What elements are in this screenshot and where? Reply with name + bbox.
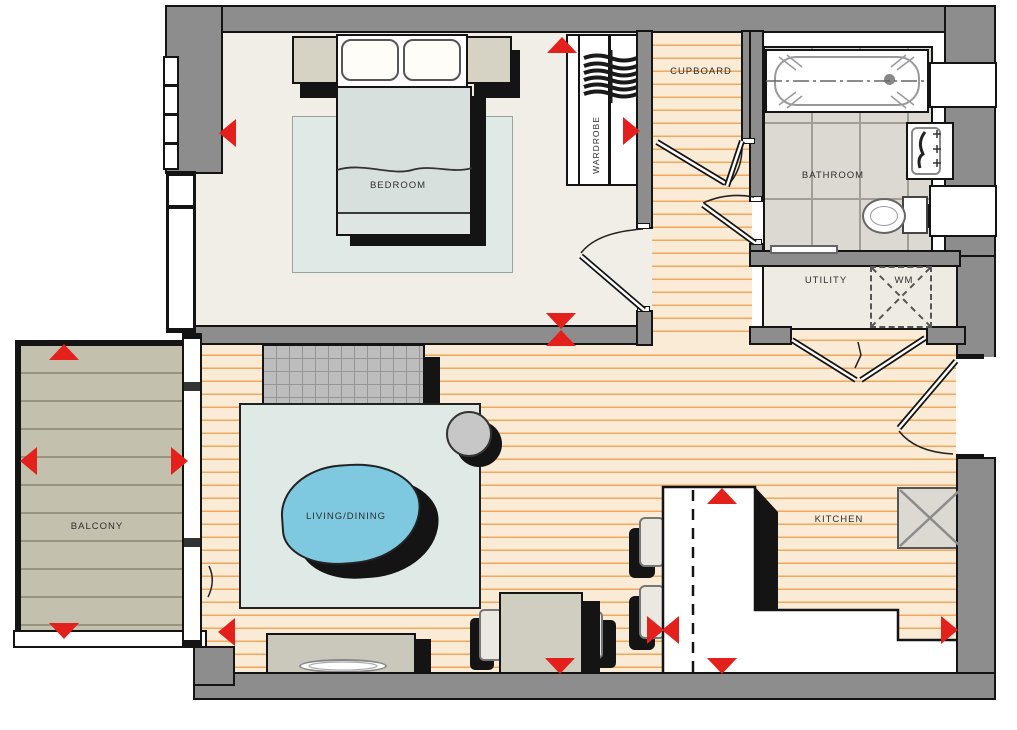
balcony-door-mullion-2 [184, 538, 200, 547]
floor-plan: BEDROOM CUPBOARD WARDROBE BATHROOM UTILI… [0, 0, 1017, 730]
window-bedroom-left-mullion-1 [166, 171, 196, 176]
bathroom-door-jamb-top [750, 196, 762, 202]
window-left-slits [163, 56, 179, 170]
sideboard-dish [299, 659, 387, 673]
dim-arrow-counter-left-b [662, 616, 679, 644]
dim-arrow-dining [545, 658, 575, 674]
washing-machine-label: WM [879, 275, 929, 286]
balcony-door-frame-top [182, 333, 202, 339]
dim-arrow-bedroom-wall-bottom [546, 330, 576, 346]
dim-arrow-balcony-left [20, 447, 37, 475]
balcony-label: BALCONY [47, 521, 147, 532]
cupboard-door-jamb [742, 138, 755, 144]
bed-pillow-right [403, 39, 461, 81]
wall-bathroom-left-upper [749, 30, 764, 202]
wall-bottom [193, 672, 996, 700]
bed-pillow-left [341, 39, 399, 81]
bathroom-label: BATHROOM [783, 170, 883, 181]
entrance-jamb-bottom [956, 454, 984, 459]
balcony-door-wall [182, 333, 202, 647]
bed-headboard-right [466, 36, 512, 84]
bathroom-door-jamb-bottom [750, 239, 762, 245]
wall-utility-bottom-left [749, 326, 792, 345]
bedroom-door-jamb-top [637, 223, 650, 229]
balcony-railing [13, 630, 207, 648]
bar-stool-1 [639, 517, 665, 567]
towel-rail [770, 245, 838, 254]
wall-top [165, 5, 996, 33]
bathroom-window-box-1 [929, 62, 997, 108]
dim-arrow-bedroom-wall-top [546, 313, 576, 329]
entrance-jamb-top [956, 354, 984, 359]
wall-utility-bottom-right [926, 326, 966, 345]
bedroom-label: BEDROOM [348, 180, 448, 191]
side-table [446, 411, 492, 457]
bedroom-door-jamb-bottom [637, 306, 650, 312]
wall-bedroom-right-lower [636, 310, 653, 346]
wall-right-kitchen [956, 457, 996, 677]
dim-arrow-kitchen-top [707, 488, 737, 504]
hallway-cupboard-floor [652, 33, 752, 343]
balcony-door-frame-bottom [182, 640, 202, 647]
dim-arrow-kitchen-bottom [707, 658, 737, 674]
entrance-opening [956, 357, 998, 457]
living-dining-label: LIVING/DINING [286, 511, 406, 522]
toilet-bowl-inner [870, 206, 898, 226]
dim-arrow-balcony-top [49, 344, 79, 360]
shower-sink-basin [911, 127, 941, 175]
dim-arrow-living-left [218, 618, 235, 646]
bathtub-drain [884, 74, 895, 85]
window-bedroom-left-mullion-2 [166, 205, 196, 209]
wardrobe-label: WARDROBE [591, 105, 601, 185]
bathtub-basin [774, 56, 920, 106]
utility-label: UTILITY [776, 275, 876, 286]
wall-bottom-left-step [193, 646, 235, 686]
dim-arrow-balcony-bottom [49, 623, 79, 639]
balcony-door-mullion-1 [184, 382, 200, 391]
dim-arrow-wardrobe [623, 117, 640, 145]
cupboard-label: CUPBOARD [651, 66, 751, 77]
kitchen-label: KITCHEN [789, 514, 889, 525]
bathroom-window-box-2 [929, 185, 997, 237]
dim-arrow-bedroom-left [219, 119, 236, 147]
dim-arrow-balcony-right [171, 447, 188, 475]
wardrobe-inner-line [578, 36, 580, 184]
dim-arrow-kitchen-right [941, 616, 958, 644]
window-bedroom-left [166, 171, 196, 333]
dim-arrow-bedroom-top [547, 37, 577, 53]
wardrobe-divider [608, 36, 611, 184]
bed-footer-band [338, 212, 470, 234]
bed-headboard-left [292, 36, 338, 84]
balcony-deck [15, 340, 197, 636]
kitchen-appliance-box [897, 487, 963, 549]
